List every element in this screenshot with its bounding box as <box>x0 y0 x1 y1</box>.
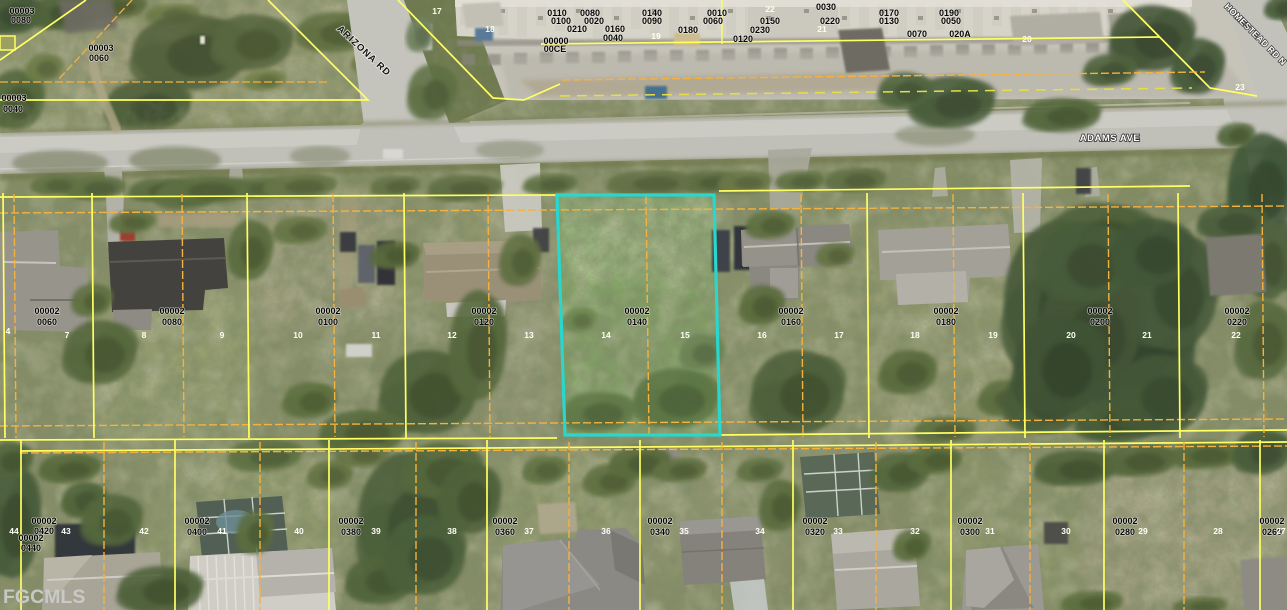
svg-text:4: 4 <box>6 326 11 336</box>
svg-text:18: 18 <box>910 330 920 340</box>
svg-text:0060: 0060 <box>37 317 57 327</box>
svg-text:0100: 0100 <box>318 317 338 327</box>
svg-text:17: 17 <box>834 330 844 340</box>
svg-text:19: 19 <box>988 330 998 340</box>
svg-text:0200: 0200 <box>1090 317 1110 327</box>
svg-text:21: 21 <box>817 24 827 34</box>
svg-text:43: 43 <box>61 526 71 536</box>
svg-text:00002: 00002 <box>34 306 59 316</box>
svg-text:7: 7 <box>65 330 70 340</box>
svg-text:00002: 00002 <box>1112 516 1137 526</box>
svg-text:8: 8 <box>142 330 147 340</box>
svg-text:18: 18 <box>485 24 495 34</box>
svg-text:30: 30 <box>1061 526 1071 536</box>
svg-text:0210: 0210 <box>567 24 587 34</box>
svg-text:42: 42 <box>139 526 149 536</box>
svg-text:00002: 00002 <box>184 516 209 526</box>
svg-text:0180: 0180 <box>936 317 956 327</box>
svg-text:21: 21 <box>1142 330 1152 340</box>
svg-text:00002: 00002 <box>1224 306 1249 316</box>
svg-text:41: 41 <box>217 526 227 536</box>
svg-text:23: 23 <box>1235 82 1245 92</box>
svg-text:16: 16 <box>757 330 767 340</box>
svg-text:00002: 00002 <box>624 306 649 316</box>
svg-text:00002: 00002 <box>802 516 827 526</box>
svg-text:34: 34 <box>755 526 765 536</box>
svg-text:0160: 0160 <box>781 317 801 327</box>
svg-text:11: 11 <box>372 330 381 340</box>
svg-text:0340: 0340 <box>650 527 670 537</box>
svg-text:9: 9 <box>220 330 225 340</box>
svg-text:0030: 0030 <box>816 2 836 12</box>
svg-text:35: 35 <box>679 526 689 536</box>
svg-text:00002: 00002 <box>315 306 340 316</box>
svg-text:00003: 00003 <box>88 43 113 53</box>
svg-text:00002: 00002 <box>338 516 363 526</box>
svg-text:0320: 0320 <box>805 527 825 537</box>
svg-text:0040: 0040 <box>603 33 623 43</box>
svg-text:0080: 0080 <box>11 15 31 25</box>
svg-text:27: 27 <box>1276 526 1286 536</box>
svg-text:00002: 00002 <box>647 516 672 526</box>
svg-text:0090: 0090 <box>642 16 662 26</box>
svg-text:00002: 00002 <box>778 306 803 316</box>
svg-text:10: 10 <box>293 330 303 340</box>
svg-text:00002: 00002 <box>31 516 56 526</box>
svg-text:00002: 00002 <box>159 306 184 316</box>
svg-text:00002: 00002 <box>492 516 517 526</box>
svg-text:0220: 0220 <box>1227 317 1247 327</box>
svg-text:15: 15 <box>680 330 690 340</box>
svg-text:0070: 0070 <box>907 29 927 39</box>
svg-text:FGCMLS: FGCMLS <box>3 586 85 608</box>
svg-text:22: 22 <box>1231 330 1241 340</box>
svg-text:00002: 00002 <box>471 306 496 316</box>
svg-text:00CE: 00CE <box>544 44 567 54</box>
svg-text:29: 29 <box>1138 526 1148 536</box>
svg-text:00002: 00002 <box>1259 516 1284 526</box>
svg-text:00003: 00003 <box>1 93 26 103</box>
svg-text:00002: 00002 <box>933 306 958 316</box>
svg-text:36: 36 <box>601 526 611 536</box>
svg-text:40: 40 <box>294 526 304 536</box>
svg-text:0400: 0400 <box>187 527 207 537</box>
svg-text:20: 20 <box>1066 330 1076 340</box>
svg-text:0140: 0140 <box>627 317 647 327</box>
svg-text:0380: 0380 <box>341 527 361 537</box>
svg-text:20: 20 <box>1022 34 1032 44</box>
svg-text:33: 33 <box>833 526 843 536</box>
svg-text:ADAMS AVE: ADAMS AVE <box>1080 133 1140 144</box>
svg-text:0180: 0180 <box>678 25 698 35</box>
svg-text:44: 44 <box>9 526 19 536</box>
svg-text:0060: 0060 <box>89 53 109 63</box>
svg-text:38: 38 <box>447 526 457 536</box>
svg-text:37: 37 <box>524 526 534 536</box>
svg-text:22: 22 <box>765 4 775 14</box>
svg-text:32: 32 <box>910 526 920 536</box>
svg-text:0060: 0060 <box>703 16 723 26</box>
svg-text:00002: 00002 <box>957 516 982 526</box>
svg-text:020A: 020A <box>949 29 971 39</box>
svg-text:00002: 00002 <box>1087 306 1112 316</box>
svg-text:0360: 0360 <box>495 527 515 537</box>
svg-text:0120: 0120 <box>474 317 494 327</box>
svg-text:0130: 0130 <box>879 16 899 26</box>
svg-text:17: 17 <box>432 6 442 16</box>
svg-text:14: 14 <box>601 330 611 340</box>
svg-text:39: 39 <box>371 526 381 536</box>
svg-text:0300: 0300 <box>960 527 980 537</box>
svg-text:0120: 0120 <box>733 34 753 44</box>
svg-text:13: 13 <box>524 330 534 340</box>
svg-text:31: 31 <box>985 526 995 536</box>
svg-text:0050: 0050 <box>941 16 961 26</box>
svg-text:0440: 0440 <box>21 543 41 553</box>
svg-text:19: 19 <box>651 31 661 41</box>
svg-text:00002: 00002 <box>18 533 43 543</box>
svg-text:12: 12 <box>447 330 457 340</box>
svg-text:0280: 0280 <box>1115 527 1135 537</box>
svg-text:0040: 0040 <box>3 104 23 114</box>
svg-text:0080: 0080 <box>162 317 182 327</box>
svg-text:28: 28 <box>1213 526 1223 536</box>
